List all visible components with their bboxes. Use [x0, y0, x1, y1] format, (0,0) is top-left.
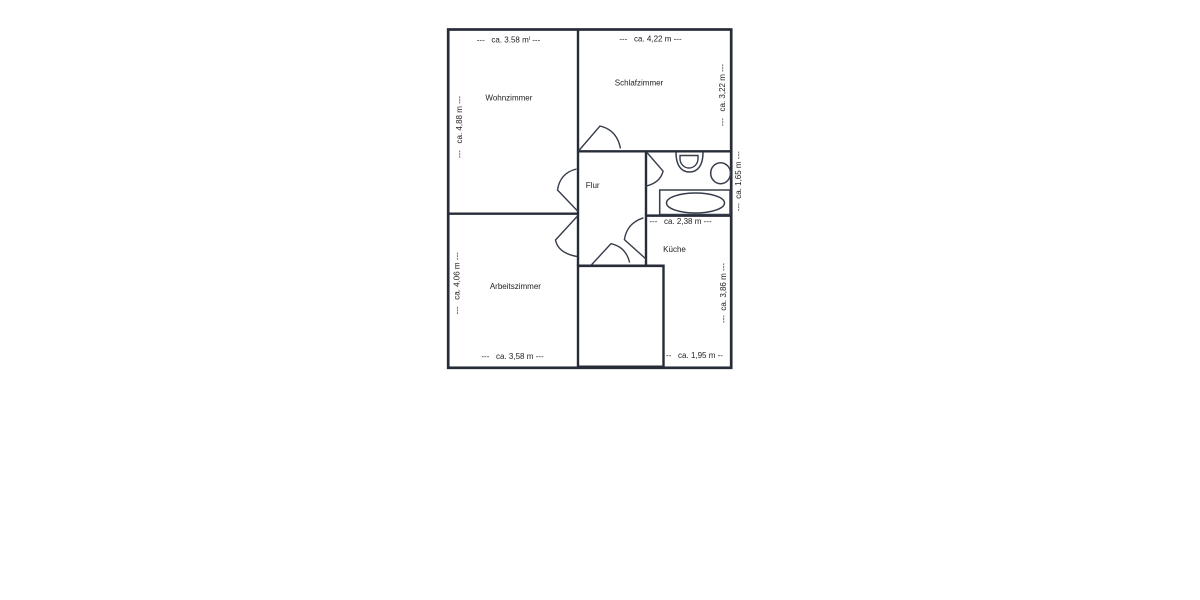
- svg-text:--- ca. 3.58 ml ---: --- ca. 3.58 ml ---: [477, 36, 541, 45]
- svg-text:Arbeitszimmer: Arbeitszimmer: [490, 282, 541, 291]
- svg-text:--- ca. 4,88 m ---: --- ca. 4,88 m ---: [455, 96, 464, 159]
- svg-text:--- ca. 3,22 m ---: --- ca. 3,22 m ---: [718, 64, 727, 127]
- svg-text:Wohnzimmer: Wohnzimmer: [485, 93, 532, 102]
- svg-text:--- ca. 4,22 m ---: --- ca. 4,22 m ---: [619, 35, 682, 44]
- svg-text:-- ca. 1,95 m --: -- ca. 1,95 m --: [666, 351, 723, 360]
- svg-text:--- ca. 1,65 m ---: --- ca. 1,65 m ---: [734, 151, 743, 211]
- svg-text:--- ca. 2,38 m ---: --- ca. 2,38 m ---: [649, 217, 712, 226]
- svg-text:Küche: Küche: [663, 245, 686, 254]
- svg-text:--- ca. 3,86 m ---: --- ca. 3,86 m ---: [719, 263, 728, 323]
- svg-text:Flur: Flur: [586, 181, 600, 190]
- svg-text:Schlafzimmer: Schlafzimmer: [615, 78, 664, 87]
- svg-text:--- ca. 3,58 m ---: --- ca. 3,58 m ---: [481, 352, 544, 361]
- svg-text:--- ca. 4,06 m ---: --- ca. 4,06 m ---: [452, 252, 461, 315]
